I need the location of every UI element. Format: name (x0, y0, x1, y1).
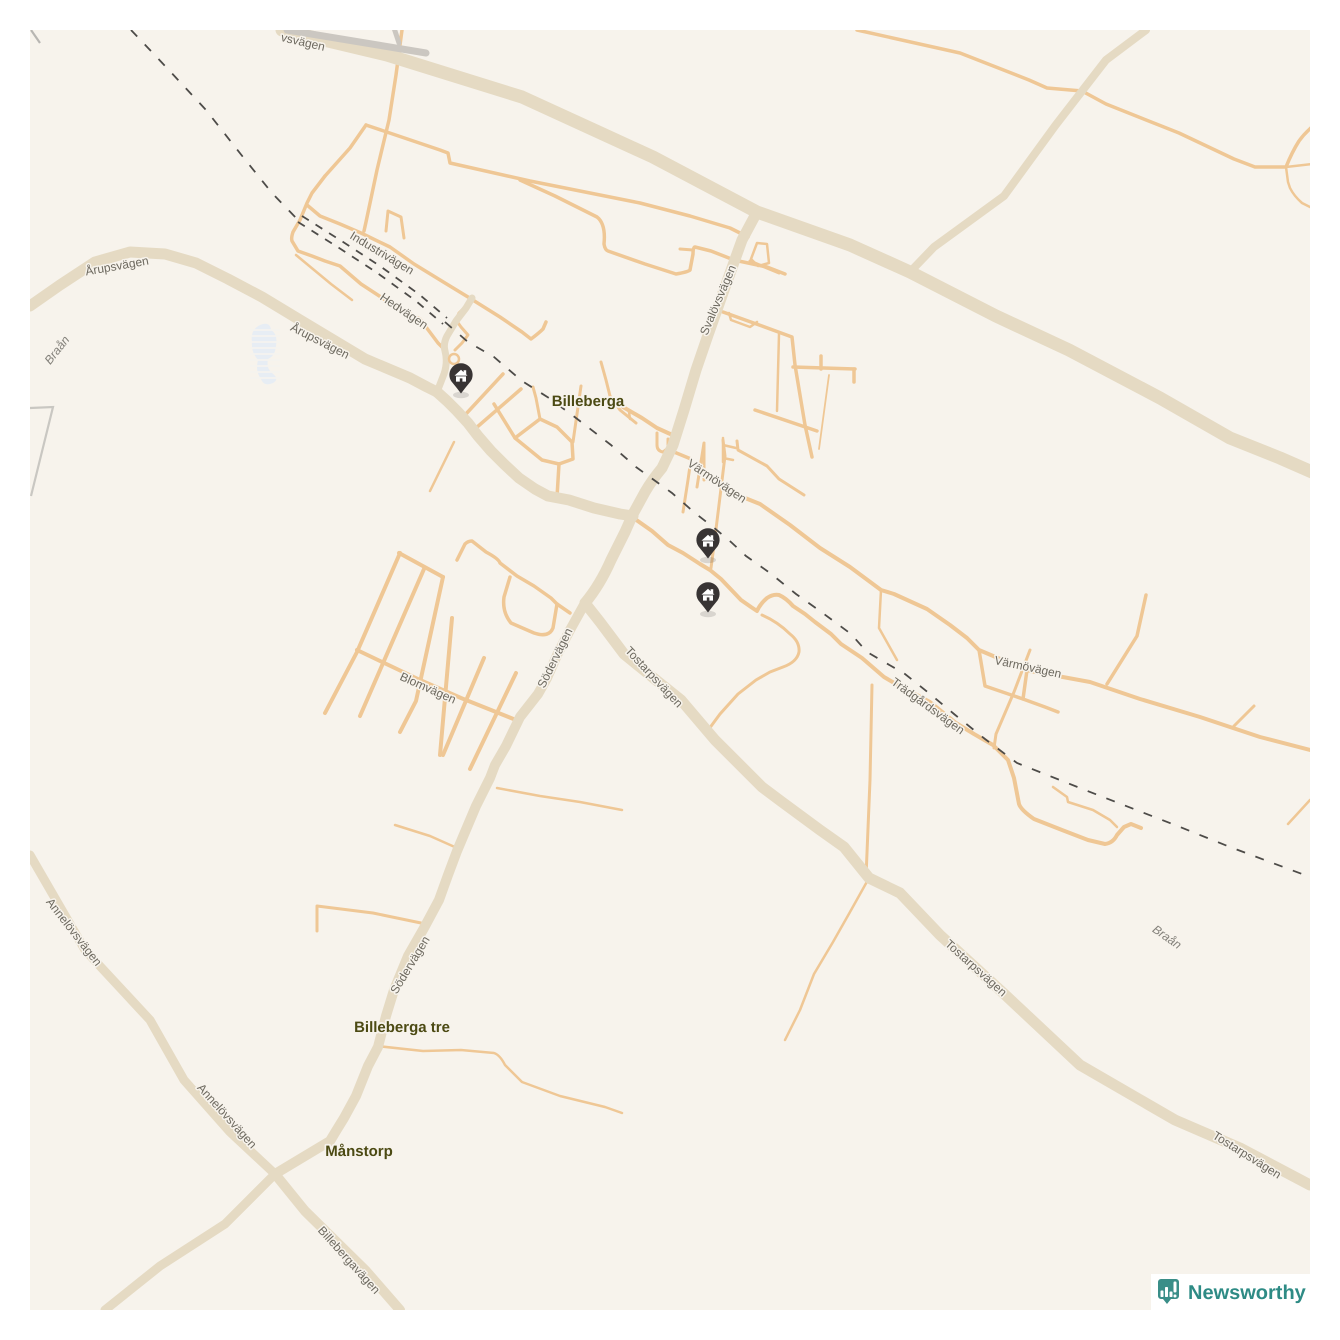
svg-text:Månstorp: Månstorp (325, 1143, 393, 1160)
svg-text:Billeberga: Billeberga (552, 393, 625, 410)
svg-text:Billeberga tre: Billeberga tre (354, 1019, 450, 1036)
svg-text:Newsworthy: Newsworthy (1188, 1282, 1307, 1304)
